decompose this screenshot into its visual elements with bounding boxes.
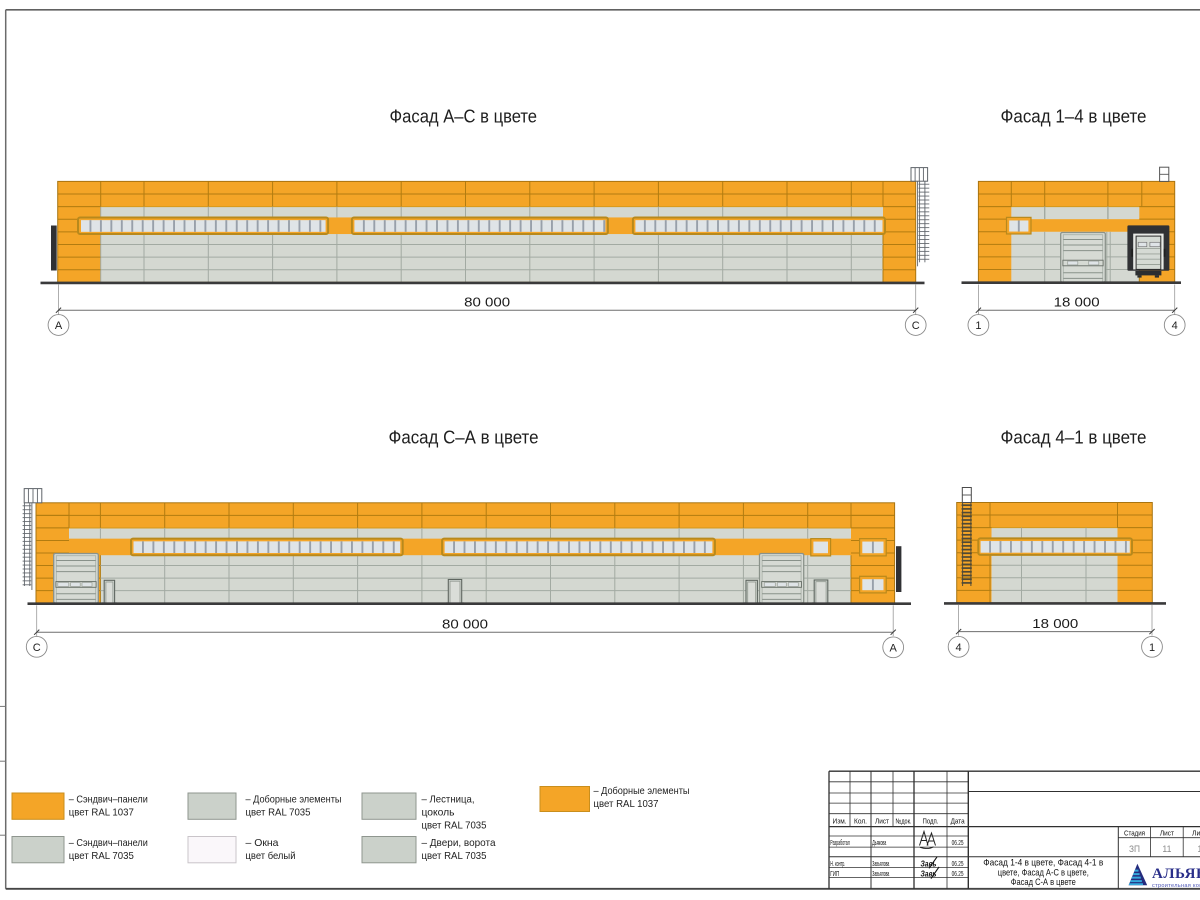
svg-text:Завьялова: Завьялова <box>872 869 889 878</box>
svg-text:– Двери, ворота: – Двери, ворота <box>422 838 496 849</box>
svg-text:Лист: Лист <box>875 816 890 825</box>
svg-text:Дьякова: Дьякова <box>872 838 886 847</box>
svg-text:18 000: 18 000 <box>1054 295 1100 310</box>
svg-text:цвет RAL 7035: цвет RAL 7035 <box>422 851 487 862</box>
svg-text:Дата: Дата <box>951 816 965 825</box>
svg-text:Стадия: Стадия <box>1124 828 1145 837</box>
svg-text:11: 11 <box>1162 844 1171 854</box>
svg-text:цоколь: цоколь <box>422 807 455 818</box>
svg-text:18 000: 18 000 <box>1032 616 1078 631</box>
svg-text:– Доборные элементы: – Доборные элементы <box>594 785 690 797</box>
svg-text:Лист: Лист <box>1160 828 1175 837</box>
svg-text:4: 4 <box>956 642 962 654</box>
svg-text:С: С <box>912 320 920 332</box>
svg-text:06.25: 06.25 <box>952 859 964 868</box>
svg-text:цвет RAL 7035: цвет RAL 7035 <box>69 851 134 862</box>
svg-text:цвет RAL 1037: цвет RAL 1037 <box>69 807 134 818</box>
svg-text:80 000: 80 000 <box>442 616 488 631</box>
svg-text:– Сэндвич–панели: – Сэндвич–панели <box>69 838 148 849</box>
svg-text:– Сэндвич–панели: – Сэндвич–панели <box>69 794 148 805</box>
svg-text:А: А <box>55 320 63 332</box>
svg-text:Фасад 1-4 в цвете, Фасад 4-1 в: Фасад 1-4 в цвете, Фасад 4-1 в <box>983 858 1103 868</box>
svg-text:Фасад С–А в цвете: Фасад С–А в цвете <box>389 428 539 448</box>
svg-text:– Лестница,: – Лестница, <box>422 794 475 805</box>
svg-text:Фасад 4–1 в цвете: Фасад 4–1 в цвете <box>1001 428 1147 448</box>
svg-text:№док.: №док. <box>896 816 912 825</box>
svg-text:– Окна: – Окна <box>246 838 279 849</box>
svg-text:1: 1 <box>1149 642 1155 654</box>
svg-text:С: С <box>33 642 41 654</box>
svg-text:Н. контр.: Н. контр. <box>830 859 845 868</box>
svg-text:строительная компания: строительная компания <box>1152 883 1200 889</box>
svg-text:Подп.: Подп. <box>923 816 939 825</box>
svg-text:цвете, Фасад А-С в цвете,: цвете, Фасад А-С в цвете, <box>998 867 1089 877</box>
svg-text:06.25: 06.25 <box>952 838 964 847</box>
svg-text:Разработал: Разработал <box>830 838 850 847</box>
svg-text:цвет RAL 7035: цвет RAL 7035 <box>422 820 487 831</box>
svg-text:1: 1 <box>975 320 981 332</box>
svg-text:Фасад 1–4 в цвете: Фасад 1–4 в цвете <box>1001 107 1147 127</box>
svg-text:цвет RAL 7035: цвет RAL 7035 <box>246 807 311 818</box>
svg-text:Фасад А–С в цвете: Фасад А–С в цвете <box>390 107 538 127</box>
svg-text:АЛЬЯНС: АЛЬЯНС <box>1152 866 1200 882</box>
svg-text:– Доборные элементы: – Доборные элементы <box>246 793 342 805</box>
svg-text:80 000: 80 000 <box>464 295 510 310</box>
svg-text:Изм.: Изм. <box>833 816 847 825</box>
svg-text:Завь: Завь <box>921 858 937 868</box>
svg-text:ГИП: ГИП <box>830 869 839 878</box>
svg-text:Кол.: Кол. <box>854 816 867 825</box>
svg-text:Завьялова: Завьялова <box>872 859 889 868</box>
svg-text:06.25: 06.25 <box>952 869 964 878</box>
svg-text:А: А <box>890 642 898 654</box>
svg-text:Фасад С-А в цвете: Фасад С-А в цвете <box>1011 877 1076 887</box>
svg-text:Листов: Листов <box>1192 828 1200 837</box>
svg-text:ЗП: ЗП <box>1129 844 1140 854</box>
svg-text:цвет белый: цвет белый <box>246 850 296 862</box>
svg-text:цвет RAL 1037: цвет RAL 1037 <box>594 799 659 810</box>
svg-text:4: 4 <box>1172 320 1178 332</box>
